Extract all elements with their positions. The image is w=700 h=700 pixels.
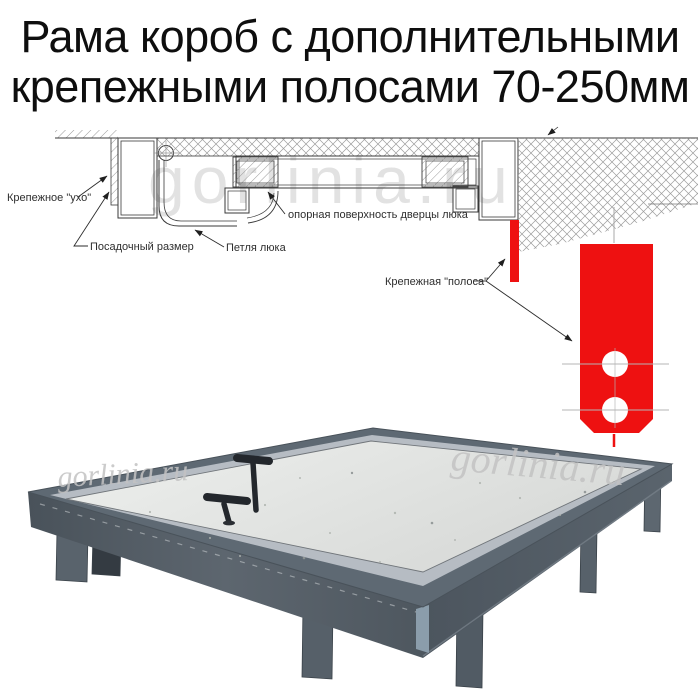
slab-right <box>518 138 698 252</box>
label-fastening-strip: Крепежная "полоса" <box>385 276 488 288</box>
watermark-photo-left: gorlinia.ru <box>57 454 189 494</box>
strip-on-frame <box>510 220 519 282</box>
technical-diagram: gorlinia.ru <box>7 127 698 447</box>
label-hinge: Петля люка <box>226 242 287 254</box>
slab-surface-arrow <box>548 127 558 135</box>
t-handle-foot <box>223 521 235 526</box>
frame-corner-hollow <box>416 605 429 653</box>
illustration: gorlinia.ru <box>0 0 700 700</box>
label-support-surface: опорная поверхность дверцы люка <box>288 209 469 221</box>
t-handle-short-bar <box>207 497 247 501</box>
slab-over-door <box>157 138 479 156</box>
label-seat-size: Посадочный размер <box>90 241 194 253</box>
product-card: Рама короб с дополнительными крепежными … <box>0 0 700 700</box>
ceiling-hatch-left <box>55 130 118 138</box>
t-handle-tall-post <box>253 463 256 510</box>
label-fastening-ear: Крепежное "ухо" <box>7 192 91 204</box>
fastening-ear <box>111 138 118 205</box>
